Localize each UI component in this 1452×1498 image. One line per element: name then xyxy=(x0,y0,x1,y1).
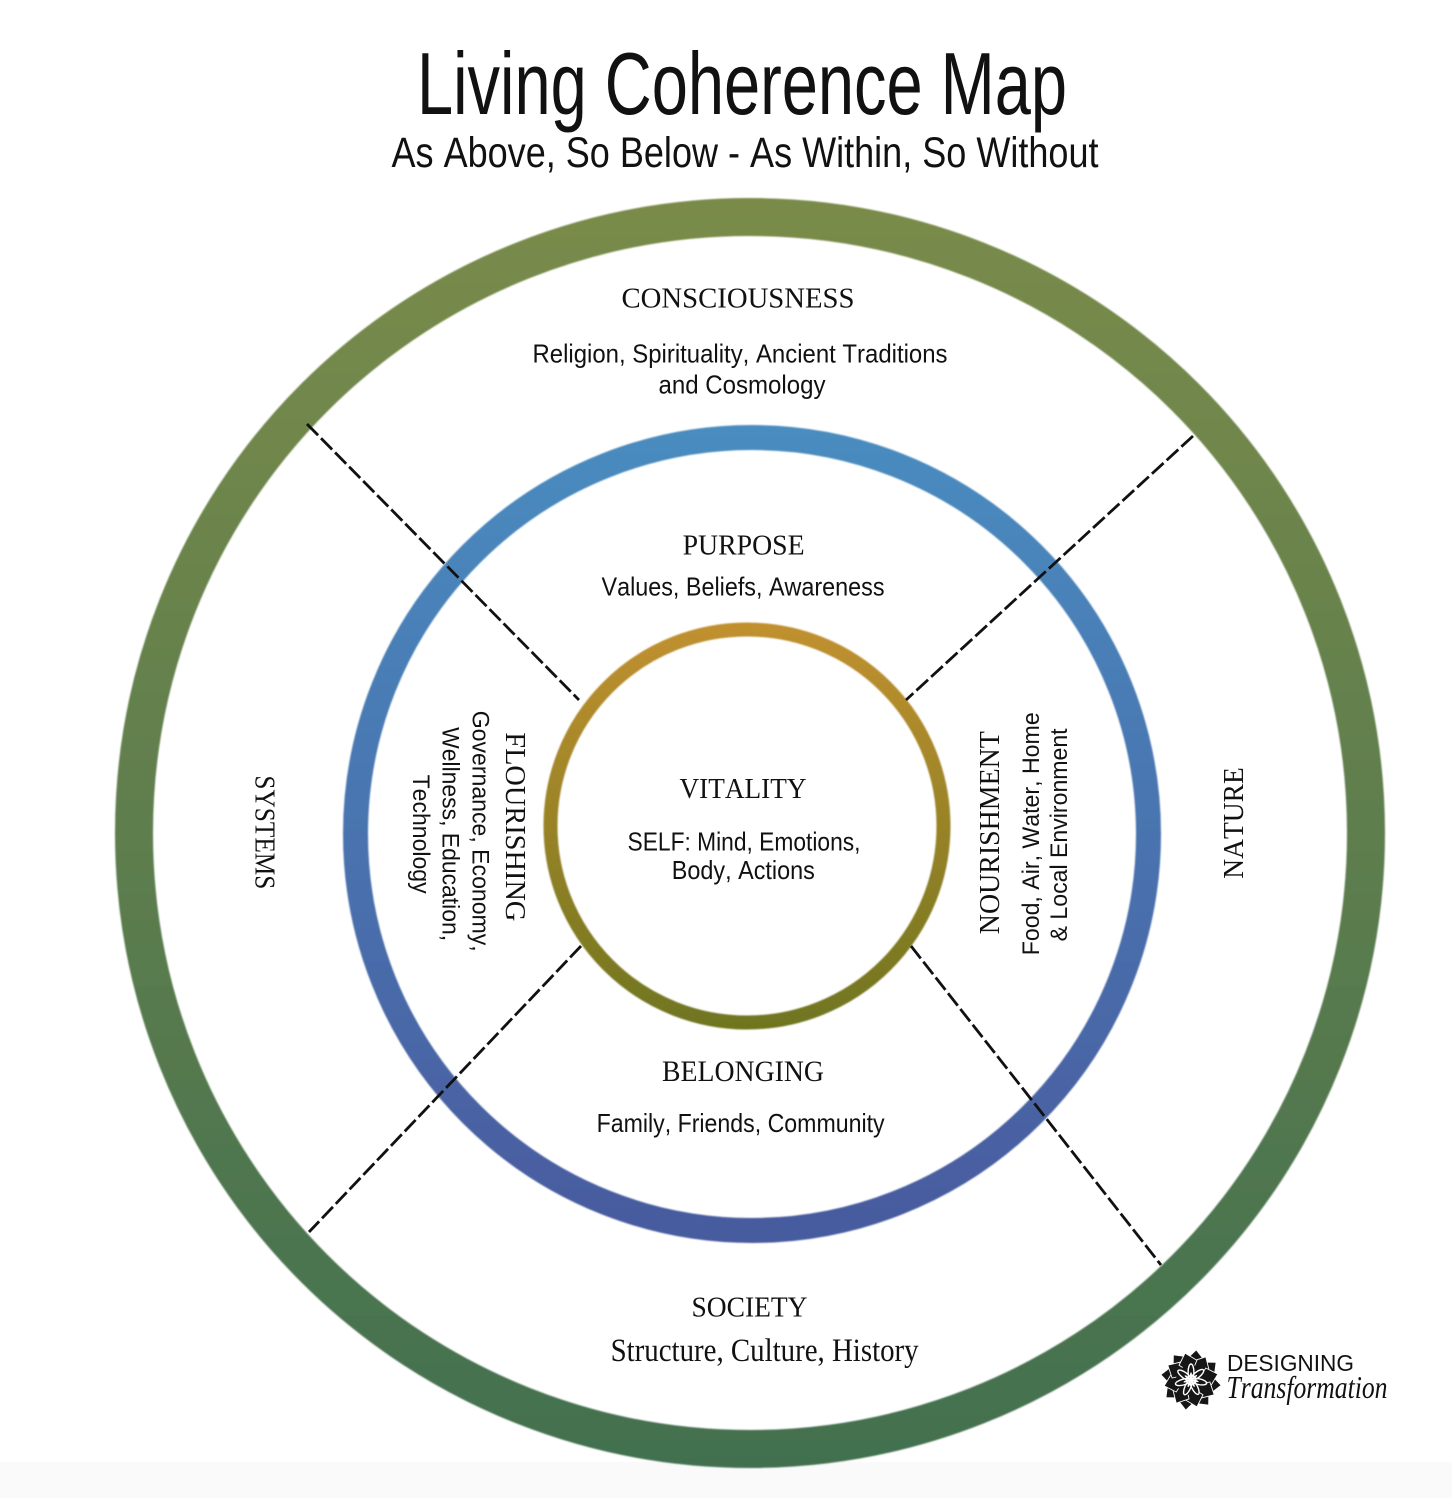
svg-text:Values, Beliefs, Awareness: Values, Beliefs, Awareness xyxy=(602,571,885,601)
svg-text:CONSCIOUSNESS: CONSCIOUSNESS xyxy=(622,284,855,315)
svg-text:SOCIETY: SOCIETY xyxy=(692,1291,808,1323)
svg-text:Technology: Technology xyxy=(407,775,434,894)
svg-text:NATURE: NATURE xyxy=(1218,767,1250,879)
svg-text:Food, Air, Water, Home: Food, Air, Water, Home xyxy=(1018,712,1045,955)
svg-text:Governance, Economy,: Governance, Economy, xyxy=(467,711,494,952)
svg-text:FLOURISHING: FLOURISHING xyxy=(499,732,531,921)
svg-text:and Cosmology: and Cosmology xyxy=(659,370,826,400)
svg-text:Family, Friends, Community: Family, Friends, Community xyxy=(597,1108,885,1138)
svg-text:As Above, So Below - As Within: As Above, So Below - As Within, So Witho… xyxy=(392,129,1099,177)
svg-text:Structure, Culture, History: Structure, Culture, History xyxy=(611,1333,919,1369)
svg-text:SYSTEMS: SYSTEMS xyxy=(248,775,279,889)
svg-text:NOURISHMENT: NOURISHMENT xyxy=(974,731,1006,934)
svg-text:Religion, Spirituality, Ancien: Religion, Spirituality, Ancient Traditio… xyxy=(533,339,948,369)
svg-text:BELONGING: BELONGING xyxy=(662,1055,824,1088)
svg-text:Wellness, Education,: Wellness, Education, xyxy=(436,727,463,941)
svg-text:SELF: Mind, Emotions,: SELF: Mind, Emotions, xyxy=(628,826,861,856)
svg-text:VITALITY: VITALITY xyxy=(680,773,807,805)
svg-text:Transformation: Transformation xyxy=(1227,1369,1388,1405)
svg-text:Body, Actions: Body, Actions xyxy=(672,855,815,885)
svg-text:PURPOSE: PURPOSE xyxy=(683,530,805,562)
svg-text:Living Coherence Map: Living Coherence Map xyxy=(417,34,1067,133)
svg-text:& Local Environment: & Local Environment xyxy=(1046,728,1073,941)
